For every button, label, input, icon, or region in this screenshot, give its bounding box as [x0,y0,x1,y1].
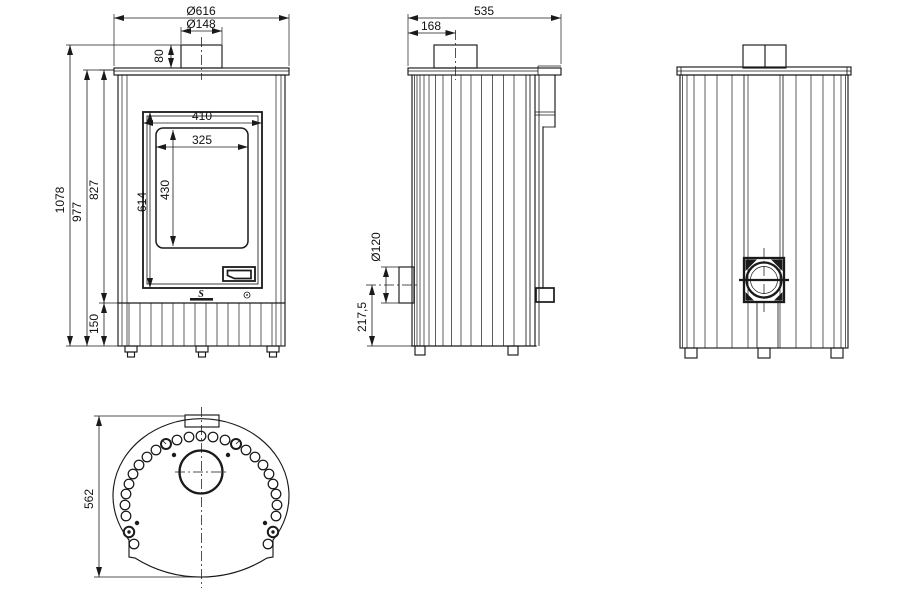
top-screw-dots [135,453,267,525]
front-base-ribs [129,303,272,346]
back-view [677,45,851,358]
dim-flue-diameter: Ø148 [186,17,216,31]
back-flue-channel [744,75,783,348]
dim-top-depth: 562 [82,489,96,509]
front-logo: S [190,289,213,301]
dim-glass-height: 430 [158,180,172,200]
side-feet [415,346,518,355]
dim-upper-height: 827 [87,180,101,200]
side-door-profile [535,75,555,302]
dim-body-height: 977 [70,202,84,222]
top-fixing-holes [124,439,278,537]
side-body [412,75,539,346]
drawing-canvas: S Ø616 [0,0,900,606]
back-feet [685,348,843,358]
back-rear-outlet [739,248,789,314]
dim-overall-height: 1078 [53,186,67,213]
top-rear-stub [185,415,219,427]
dim-base-height: 150 [87,314,101,334]
dim-glass-width: 325 [192,133,212,147]
dim-outlet-height: 217,5 [355,302,369,332]
dim-outlet-diameter: Ø120 [369,232,383,262]
top-vent-holes [120,431,282,549]
dim-door-width: 410 [192,109,212,123]
dim-collar-height: 80 [152,49,166,63]
dim-overall-width: Ø616 [186,4,216,18]
front-dimensions: Ø616 Ø148 80 1078 977 827 150 614 410 3 [53,4,289,346]
side-body-ribs [415,75,515,346]
front-air-knob [244,292,250,298]
top-body-outline [113,419,289,577]
stove-technical-drawing: S Ø616 [0,0,900,606]
dim-door-height: 614 [135,192,149,212]
top-view [113,407,289,588]
side-view [366,30,561,355]
front-door-handle [223,267,255,281]
front-feet [125,346,279,357]
dim-flue-offset: 168 [421,19,441,33]
back-flue-collar [743,45,786,68]
dim-depth: 535 [474,4,494,18]
